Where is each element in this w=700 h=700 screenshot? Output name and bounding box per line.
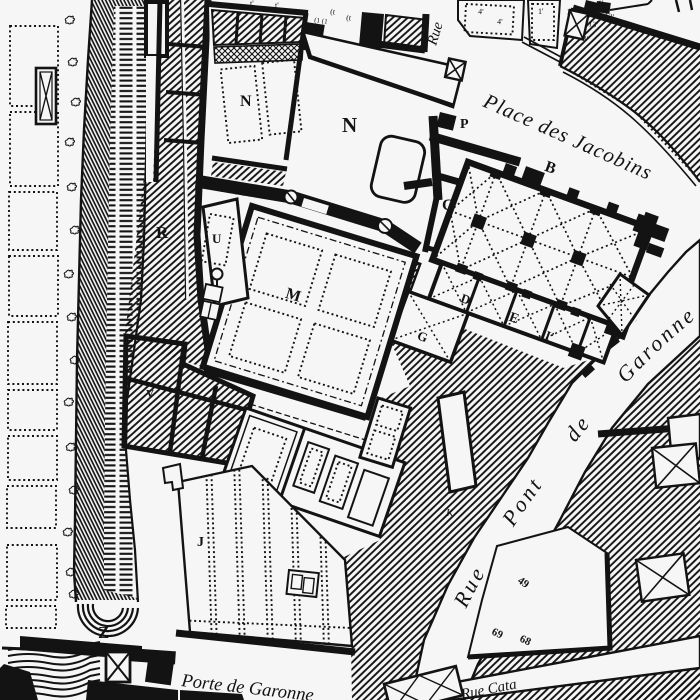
svg-text:4': 4'	[497, 17, 503, 26]
svg-text:N: N	[342, 113, 357, 137]
svg-text:J: J	[197, 535, 204, 550]
svg-text:4': 4'	[478, 7, 484, 16]
svg-text:P: P	[460, 117, 469, 132]
svg-text:V: V	[146, 388, 154, 400]
svg-text:t': t'	[250, 0, 254, 8]
svg-text:1': 1'	[538, 7, 544, 16]
svg-text:U: U	[212, 231, 222, 246]
svg-text:t': t'	[275, 1, 279, 10]
svg-text:R: R	[156, 223, 169, 242]
svg-text:N: N	[240, 93, 252, 110]
svg-text:Z: Z	[98, 623, 109, 642]
svg-text:K: K	[445, 507, 454, 519]
